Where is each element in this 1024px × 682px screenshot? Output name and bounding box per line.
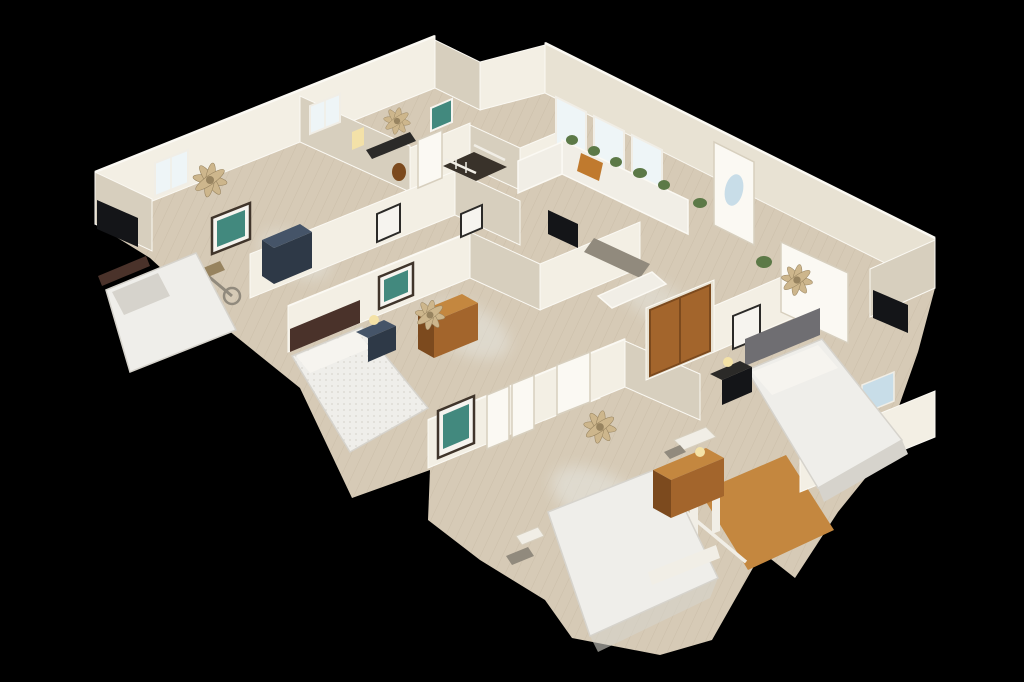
cabinet-plant [693,198,707,208]
office-white-door [418,130,442,188]
cabinet-plant [658,180,670,190]
cabinet-plant [610,157,622,167]
nightstand-lamp [369,315,379,325]
fan-hub [427,312,434,319]
shelf-decor [392,163,406,181]
fan-hub [394,118,400,124]
cabinet-plant [633,168,647,178]
fan-hub [596,423,604,431]
screenshot-canvas [0,0,1024,682]
fan-hub [793,276,800,283]
dollhouse-3d-view[interactable] [0,0,1024,682]
chest-lamp [695,447,705,457]
cabinet-plant [756,256,772,268]
white-double-door [487,386,509,449]
cabinet-plant [588,146,600,156]
fan-hub [206,176,214,184]
nightstand-lamp [723,357,733,367]
white-double-door [512,375,534,438]
cabinet-plant [566,135,578,145]
